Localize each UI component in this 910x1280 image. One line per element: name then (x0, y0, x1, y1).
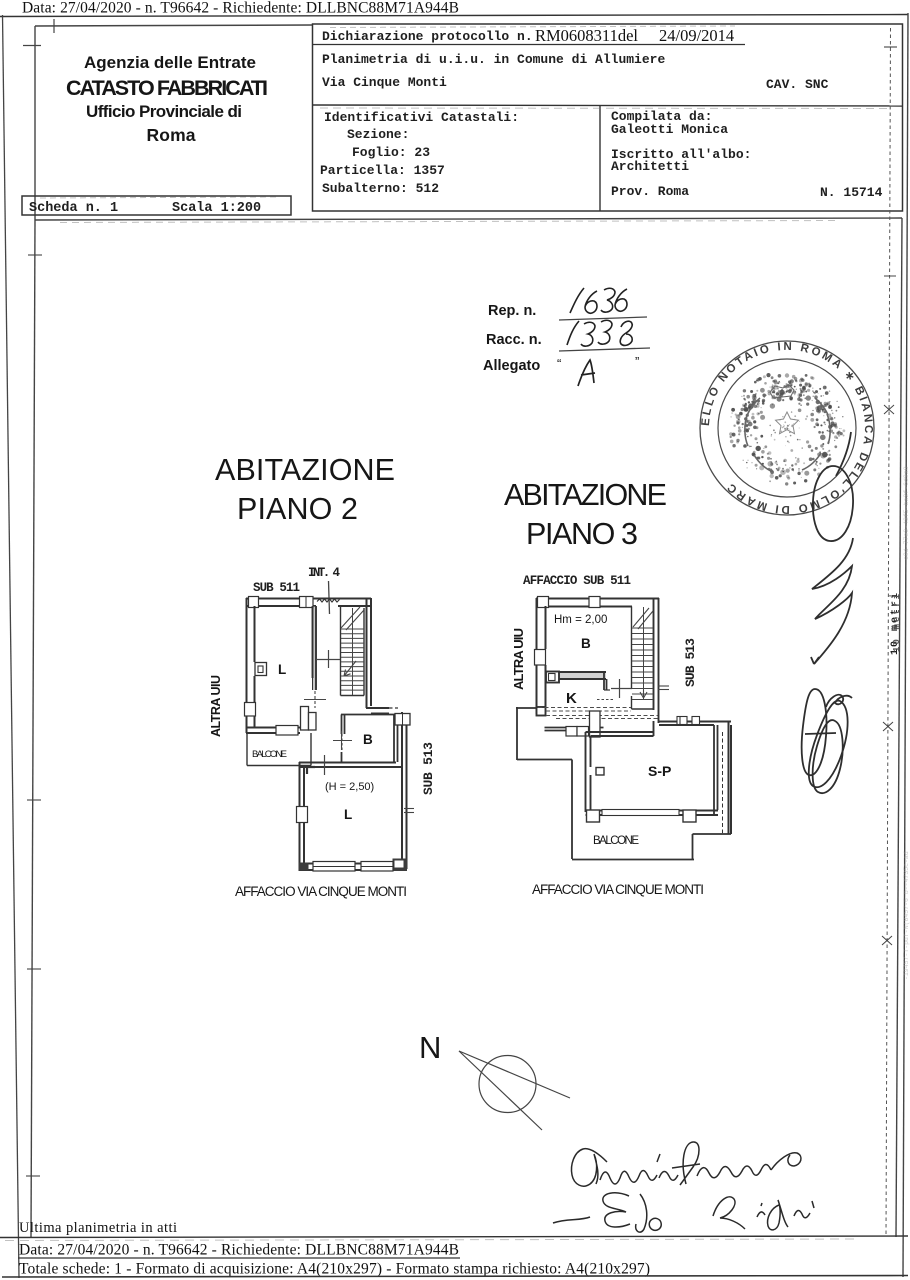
svg-text:BALCONE: BALCONE (252, 749, 287, 760)
svg-text:S-P: S-P (648, 763, 671, 779)
svg-text:Planimetria di u.i.u. in Comun: Planimetria di u.i.u. in Comune di Allum… (322, 52, 665, 67)
svg-text:Ultima planimetria in atti: Ultima planimetria in atti (19, 1220, 177, 1236)
svg-text:BALCONE: BALCONE (593, 835, 639, 847)
svg-text:B: B (581, 636, 591, 651)
svg-text:AFFACCIO VIA CINQUE MONTI: AFFACCIO VIA CINQUE MONTI (532, 882, 704, 897)
svg-text:Scheda n. 1: Scheda n. 1 (29, 201, 118, 216)
svg-text:AFFACCIO VIA CINQUE MONTI: AFFACCIO VIA CINQUE MONTI (235, 884, 407, 899)
svg-text:Agenzia delle Entrate: Agenzia delle Entrate (84, 53, 256, 72)
svg-text:ALTRA UIU: ALTRA UIU (209, 675, 223, 737)
svg-text:INT. 4: INT. 4 (308, 566, 340, 580)
svg-text:Subalterno: 512: Subalterno: 512 (322, 181, 439, 196)
svg-text:N. 15714: N. 15714 (820, 185, 883, 200)
svg-text:SUB 513: SUB 513 (683, 638, 698, 687)
svg-text:Data: 27/04/2020 - n. T96642 -: Data: 27/04/2020 - n. T96642 - Richieden… (22, 0, 459, 17)
svg-text:Architetti: Architetti (611, 159, 689, 174)
svg-text:PIANO 2: PIANO 2 (237, 492, 358, 526)
svg-text:Sezione:: Sezione: (347, 127, 409, 142)
svg-text:K: K (566, 690, 577, 707)
svg-text:Dichiarazione protocollo n.: Dichiarazione protocollo n. (322, 29, 533, 44)
svg-text:Roma: Roma (147, 125, 196, 145)
svg-text:B: B (363, 732, 373, 747)
svg-text:N: N (419, 1030, 441, 1065)
svg-text:Data: 27/04/2020 - n. T96642 -: Data: 27/04/2020 - n. T96642 - Richieden… (19, 1242, 459, 1259)
svg-text:Identificativi Catastali:: Identificativi Catastali: (324, 110, 519, 125)
svg-text:-19457-T-pdf-N(8457-6 b--4735c: -19457-T-pdf-N(8457-6 b--4735c-ad (903, 851, 910, 980)
svg-text:Particella: 1357: Particella: 1357 (320, 163, 445, 178)
svg-text:CATASTO FABBRICATI: CATASTO FABBRICATI (66, 76, 268, 100)
svg-text:RM0608311del: RM0608311del (535, 26, 638, 45)
svg-text:Galeotti Monica: Galeotti Monica (611, 122, 728, 137)
svg-text:ABITAZIONE: ABITAZIONE (215, 453, 395, 487)
svg-text:c9d-77e0-43f5-ba2f-6d9a8: c9d-77e0-43f5-ba2f-6d9a8 (903, 466, 910, 560)
svg-text:Hm = 2,00: Hm = 2,00 (554, 614, 607, 626)
svg-text:ABITAZIONE: ABITAZIONE (504, 478, 667, 512)
svg-text:Rep. n.: Rep. n. (488, 303, 536, 319)
svg-text:24/09/2014: 24/09/2014 (659, 26, 734, 45)
svg-text:PIANO 3: PIANO 3 (526, 517, 638, 551)
svg-text:Via Cinque Monti: Via Cinque Monti (322, 75, 447, 90)
svg-text:CAV. SNC: CAV. SNC (766, 77, 829, 92)
svg-text:Allegato: Allegato (483, 358, 540, 374)
svg-text:SUB 511: SUB 511 (253, 581, 300, 595)
svg-text:10 metri: 10 metri (892, 593, 902, 652)
svg-text:Totale schede: 1 - Formato di: Totale schede: 1 - Formato di acquisizio… (19, 1261, 650, 1278)
svg-text:Prov. Roma: Prov. Roma (611, 184, 689, 199)
svg-text:AFFACCIO SUB 511: AFFACCIO SUB 511 (523, 574, 631, 588)
svg-text:“: “ (557, 356, 561, 371)
svg-text:Racc. n.: Racc. n. (486, 332, 542, 348)
svg-text:ALTRA UIU: ALTRA UIU (511, 628, 526, 690)
svg-text:(H = 2,50): (H = 2,50) (325, 781, 374, 793)
svg-text:Foglio: 23: Foglio: 23 (352, 145, 430, 160)
svg-text:Scala 1:200: Scala 1:200 (172, 201, 261, 216)
svg-text:L: L (278, 662, 286, 677)
svg-text:L: L (344, 807, 352, 822)
svg-text:SUB 513: SUB 513 (421, 742, 436, 795)
svg-text:”: ” (635, 354, 639, 369)
svg-text:Ufficio Provinciale di: Ufficio Provinciale di (86, 102, 242, 121)
